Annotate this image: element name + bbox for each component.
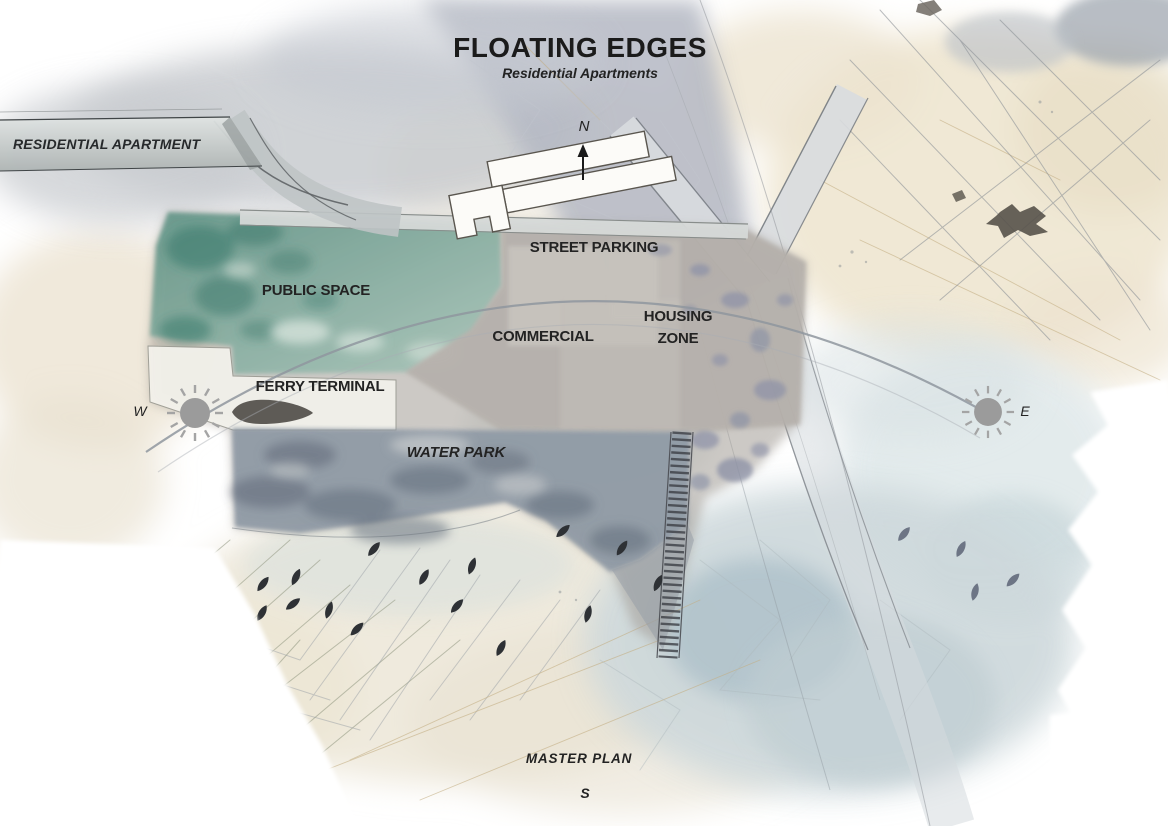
banner-label: RESIDENTIAL APARTMENT — [13, 137, 200, 151]
zone-label-ferry-terminal: FERRY TERMINAL — [256, 379, 385, 394]
page-title: FLOATING EDGES — [453, 34, 707, 62]
compass-west-label: W — [133, 404, 146, 418]
zone-label-water-park: WATER PARK — [407, 445, 506, 460]
compass-east-label: E — [1020, 404, 1029, 418]
plan-caption: MASTER PLAN — [526, 752, 632, 766]
zone-label-street-parking: STREET PARKING — [530, 240, 659, 255]
compass-south-label: S — [580, 786, 589, 800]
zone-label-housing-zone: HOUSING ZONE — [634, 306, 722, 350]
compass-north-label: N — [579, 119, 590, 134]
zone-label-public-space: PUBLIC SPACE — [262, 283, 370, 298]
master-plan-poster: FLOATING EDGES Residential Apartments RE… — [0, 0, 1168, 826]
zone-label-commercial: COMMERCIAL — [492, 329, 593, 344]
page-subtitle: Residential Apartments — [502, 66, 658, 80]
